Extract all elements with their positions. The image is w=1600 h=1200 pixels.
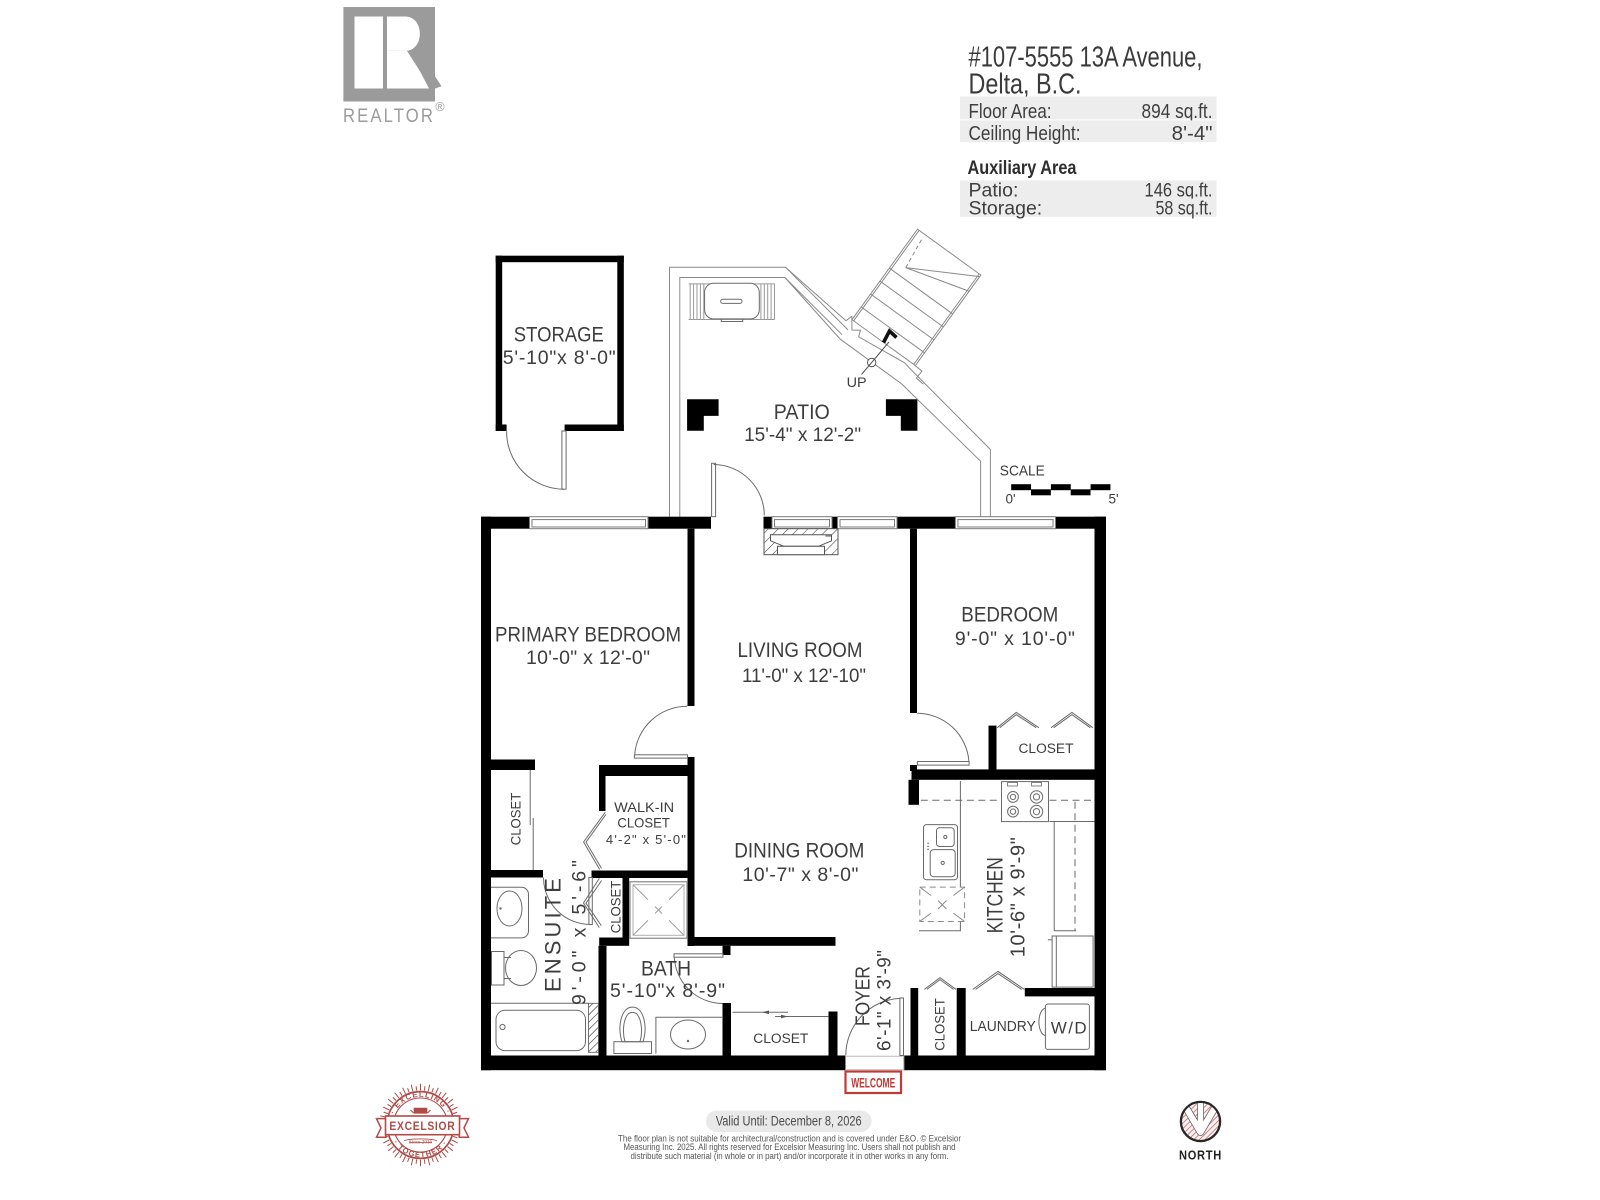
svg-text:894 sq.ft.: 894 sq.ft. [1142,100,1213,123]
svg-text:W/D: W/D [1051,1019,1087,1038]
svg-text:BATH: BATH [641,958,691,981]
svg-text:CLOSET: CLOSET [1019,741,1074,756]
svg-text:CLOSET: CLOSET [609,881,624,934]
svg-text:EXCELSIOR: EXCELSIOR [389,1119,455,1133]
svg-text:Floor Area:: Floor Area: [969,100,1052,123]
svg-text:Since 2016: Since 2016 [409,1140,433,1146]
svg-text:9'-0" x 10'-0": 9'-0" x 10'-0" [955,628,1075,650]
svg-text:10'-6" x 9'-9": 10'-6" x 9'-9" [1008,837,1030,957]
svg-text:8'-4": 8'-4" [1172,122,1213,145]
svg-text:5'-10"x 8'-0": 5'-10"x 8'-0" [503,347,616,369]
svg-text:UP: UP [847,374,867,390]
svg-text:CLOSET: CLOSET [617,815,670,831]
svg-text:Delta, B.C.: Delta, B.C. [969,69,1082,101]
svg-text:CLOSET: CLOSET [509,793,524,846]
svg-text:REALTOR: REALTOR [343,105,435,127]
svg-text:Storage:: Storage: [969,198,1043,220]
svg-text:STORAGE: STORAGE [514,324,604,347]
svg-text:4'-2" x 5'-0": 4'-2" x 5'-0" [606,832,686,847]
svg-text:Auxiliary Area: Auxiliary Area [968,158,1077,179]
svg-text:KITCHEN: KITCHEN [983,857,1008,933]
svg-text:NORTH: NORTH [1179,1149,1222,1163]
svg-text:®: ® [435,100,445,114]
svg-text:5'-10"x 8'-9": 5'-10"x 8'-9" [610,980,725,1002]
svg-text:FOYER: FOYER [853,966,875,1026]
svg-text:Valid Until: December 8, 2026: Valid Until: December 8, 2026 [716,1114,862,1129]
svg-text:10'-7" x 8'-0": 10'-7" x 8'-0" [742,864,858,886]
svg-text:0': 0' [1005,492,1015,507]
svg-text:58 sq.ft.: 58 sq.ft. [1156,198,1213,220]
svg-text:15'-4" x 12'-2": 15'-4" x 12'-2" [744,424,861,446]
svg-text:CLOSET: CLOSET [933,998,948,1051]
svg-text:10'-0" x 12'-0": 10'-0" x 12'-0" [526,647,650,669]
svg-text:WELCOME: WELCOME [851,1076,895,1091]
svg-text:DINING ROOM: DINING ROOM [734,840,864,863]
svg-text:LAUNDRY: LAUNDRY [970,1019,1036,1035]
svg-text:distribute such material (in w: distribute such material (in whole or in… [631,1151,949,1161]
svg-text:CLOSET: CLOSET [753,1031,808,1046]
svg-text:5': 5' [1108,492,1118,507]
svg-text:PATIO: PATIO [774,401,830,424]
svg-text:11'-0" x 12'-10": 11'-0" x 12'-10" [742,665,866,687]
svg-text:6'-1" x 3'-9": 6'-1" x 3'-9" [875,950,896,1051]
svg-text:WALK-IN: WALK-IN [614,799,674,815]
svg-text:BEDROOM: BEDROOM [961,604,1058,627]
svg-text:SCALE: SCALE [1000,464,1045,480]
svg-text:9'-0" x 5'-6": 9'-0" x 5'-6" [569,860,591,1005]
svg-text:PRIMARY BEDROOM: PRIMARY BEDROOM [495,624,681,647]
svg-text:Ceiling Height:: Ceiling Height: [969,122,1081,145]
svg-text:LIVING ROOM: LIVING ROOM [738,639,863,662]
